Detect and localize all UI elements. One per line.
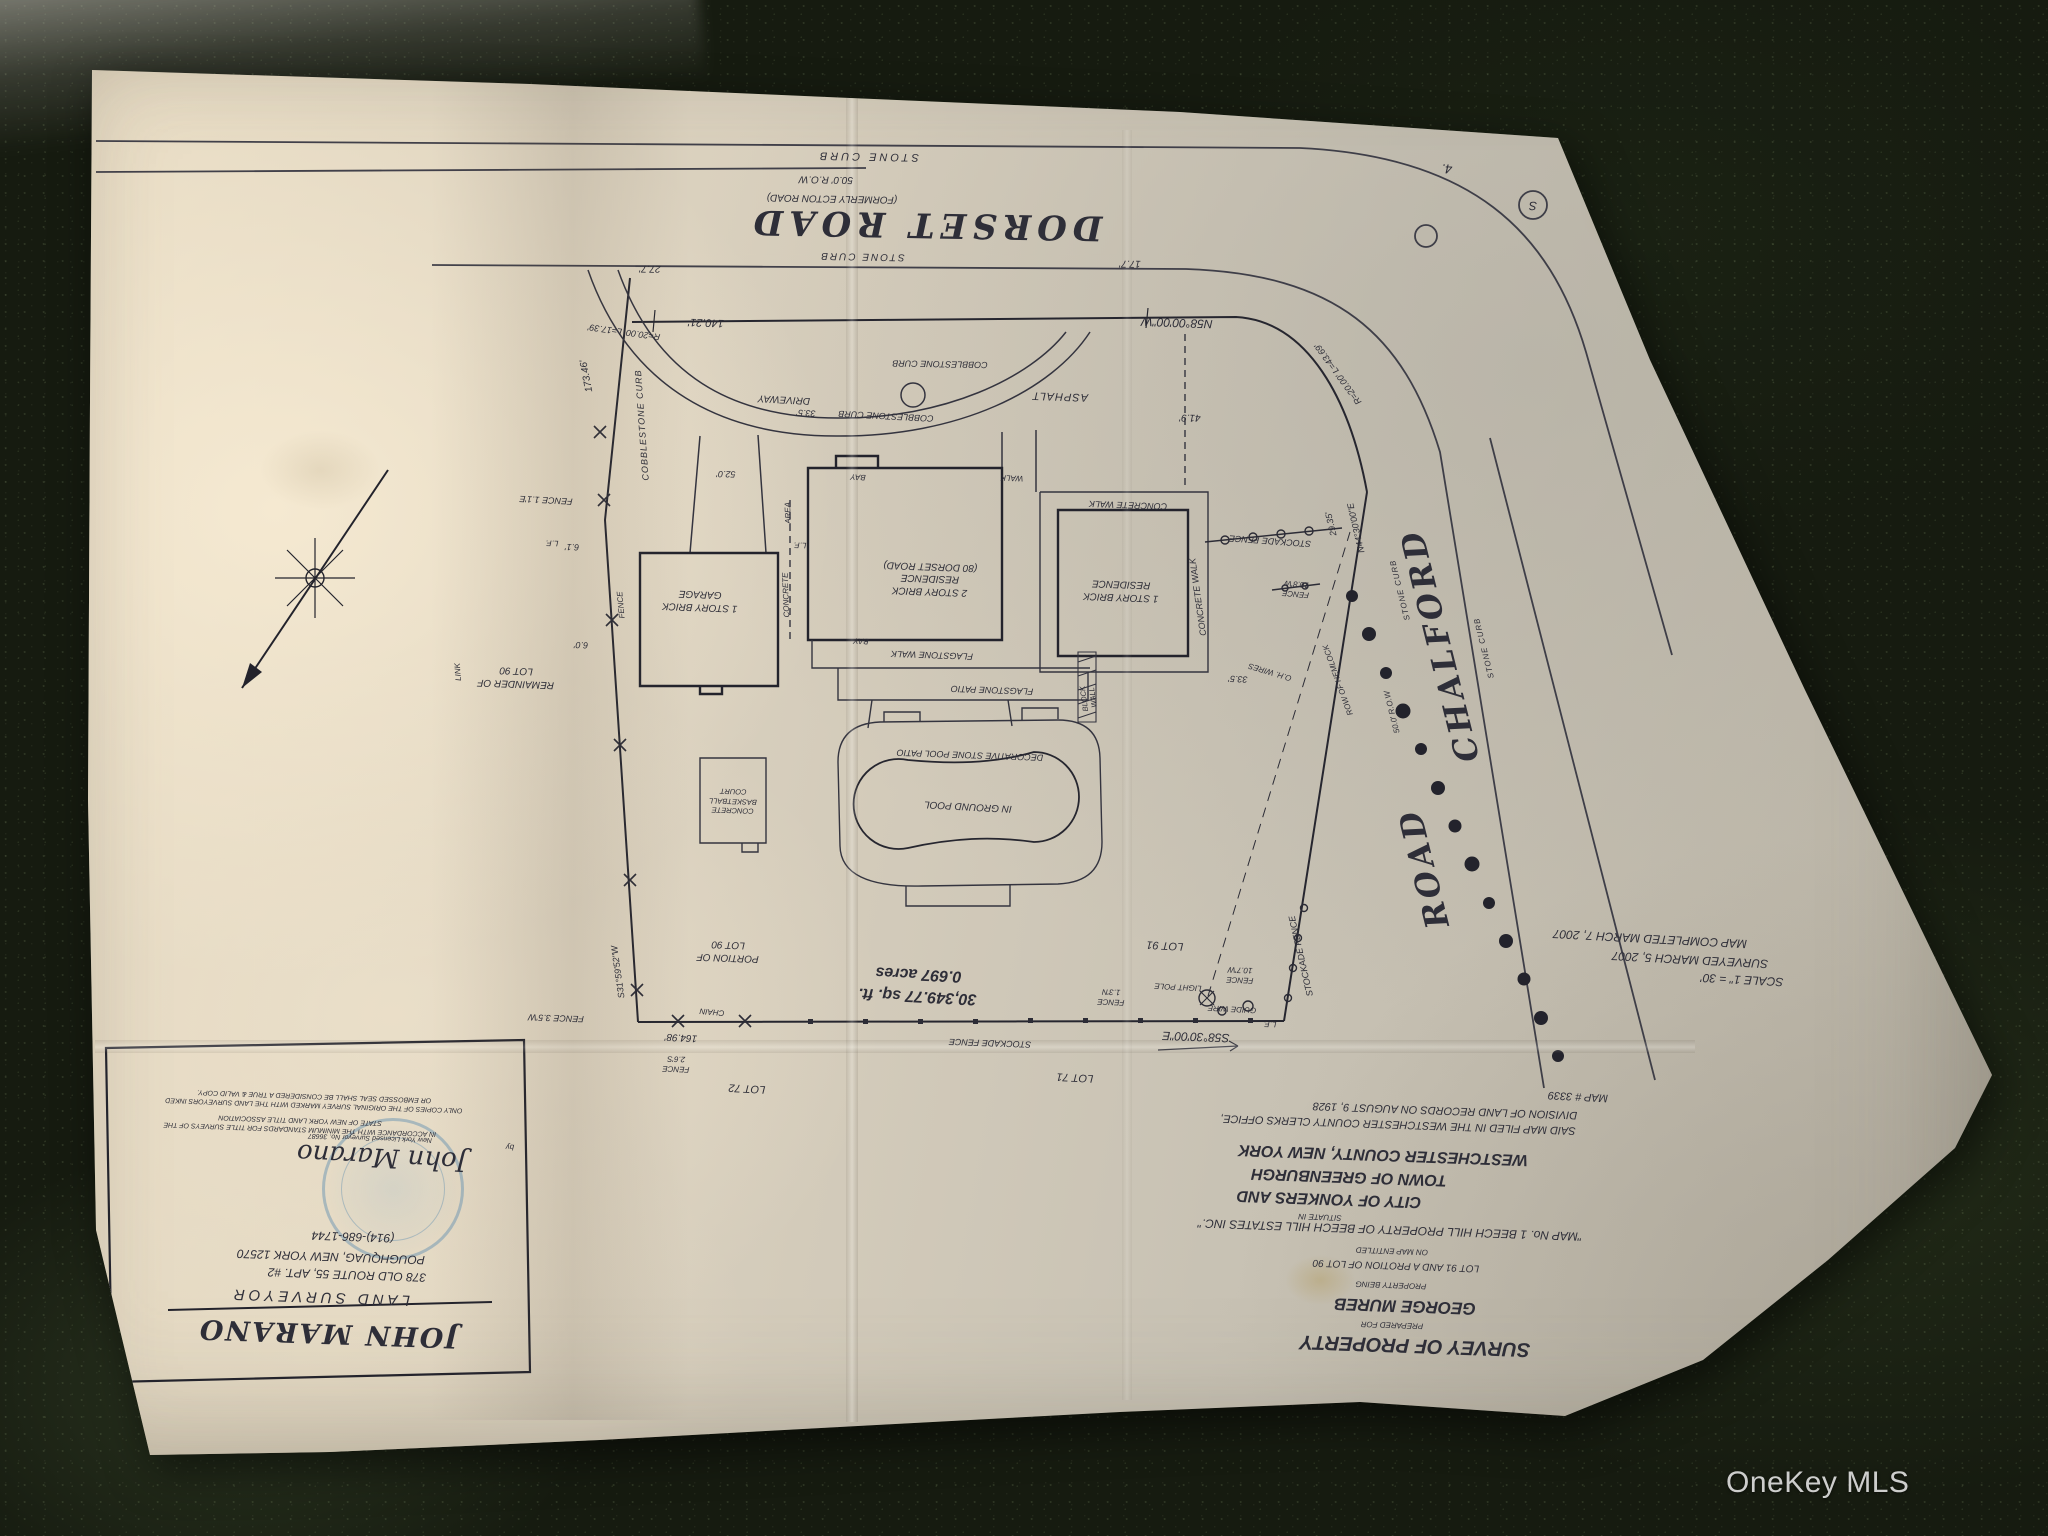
plat-label: COBBLESTONE CURB [892,358,988,370]
plat-label: FENCE 10.7'W [1226,965,1254,985]
plat-label: CONCRETE BASKETBALL COURT [709,786,758,816]
plat-label: L.F. [545,538,558,548]
survey-paper-sheet: STONE CURB50.0' R.O.W(FORMERLY ECTON ROA… [84,60,2000,1464]
south-line-bearing: S58°30'00"E [1162,1028,1230,1044]
chain-link-x-marks [594,426,751,1027]
plat-label: LOT 91 [1146,938,1183,953]
plat-label: FENCE 10.8'W [1282,578,1311,599]
plat-label: ASPHALT [1032,389,1089,404]
garage-label: 1 STORY BRICK GARAGE [662,586,738,614]
plat-label: BLOCK WALL [1079,684,1100,712]
dorset-road-name: DORSET ROAD [747,201,1102,246]
plat-label: 27.7' [639,262,661,274]
plat-label: 52.0' [716,469,735,480]
plat-label: L.F. [793,540,806,550]
walks-patios [700,334,1208,906]
plat-label: 41.9' [1179,411,1201,423]
plat-label: LINK [453,663,463,681]
lot-area: 30,349.77 sq. ft. 0.697 acres [858,960,978,1009]
plat-label: AREA [783,502,793,524]
plat-label: LOT 71 [1056,1070,1093,1085]
plat-content: STONE CURB50.0' R.O.W(FORMERLY ECTON ROA… [0,0,2048,1536]
compass-rose-icon [242,470,388,688]
plat-label: STONE CURB [817,149,919,163]
plat-label: FENCE 2.6'S [662,1054,690,1074]
plat-label: (914)-686-1744 [311,1228,394,1245]
plat-label: L.F. [1263,1019,1276,1029]
plat-label: 6.0' [574,640,589,651]
plat-label: 140.21' [688,315,724,329]
plat-label: 4. [1441,160,1452,175]
photo-canvas: { "photo": { "watermark_label": "OneKey … [0,0,2048,1536]
plat-label: 50.0' R.O.W [799,173,853,185]
scale-note: SCALE 1" = 30' [1700,970,1784,988]
plat-label: CONCRETE [781,572,792,617]
front-line-bearing: N58°00'00"W [1141,314,1213,330]
plat-label: 6.1' [565,542,580,553]
plat-label: 17.7' [1119,257,1141,269]
plat-label: 33.5' [796,407,816,418]
plat-label: BAY [853,636,869,646]
plat-label: FENCE 3.5'W [528,1012,584,1024]
plat-label: WALK [1001,473,1024,483]
paper-stain [1580,150,1750,270]
plat-label: REMAINDER OF LOT 90 [477,663,555,692]
plat-label: PORTION OF LOT 90 [697,937,760,965]
plat-label: FENCE 1.3'N [1097,987,1125,1007]
plat-label: STONE CURB [819,250,905,263]
one-story-residence-label: 1 STORY BRICK RESIDENCE [1083,576,1159,604]
plat-label: LOT 72 [728,1081,765,1096]
plat-label: 164.98' [664,1030,697,1043]
watermark: OneKey MLS [1726,1466,2026,1500]
plat-label: by [506,1142,515,1151]
plat-label: BAY [850,472,866,482]
plat-label: 33.5' [1228,673,1248,684]
two-story-residence-label: 2 STORY BRICK RESIDENCE (80 DORSET ROAD) [882,558,977,599]
plat-label: S [1529,198,1537,212]
